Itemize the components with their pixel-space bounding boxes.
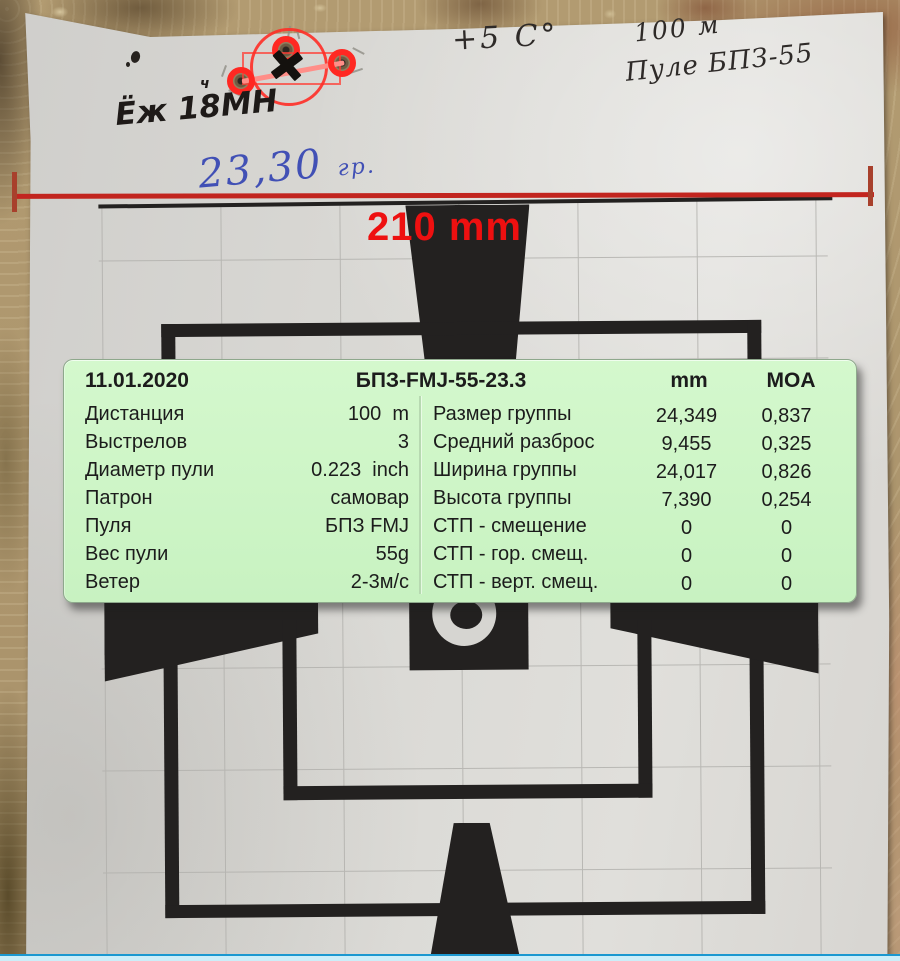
stat-label: СТП - верт. смещ.	[433, 568, 639, 596]
info-label: Выстрелов	[85, 428, 187, 456]
target-inner-bottom-bar	[283, 784, 652, 801]
info-value: 55g	[376, 540, 409, 568]
info-value: 100 m	[348, 400, 409, 428]
info-row-wind: Ветер2-3м/с	[85, 568, 409, 596]
target-photo-view: +5 C° 100 м Пуле БПЗ-55 ч Ёж 18МН 23,30 …	[0, 0, 900, 961]
stat-label: Ширина группы	[433, 456, 639, 484]
stat-moa: 0,826	[734, 456, 839, 484]
stat-row-poi-horizontal: СТП - гор. смещ.00	[433, 540, 839, 568]
info-row-bullet: ПуляБПЗ FMJ	[85, 512, 409, 540]
paper-speck	[126, 62, 130, 67]
column-header-mm: mm	[639, 369, 739, 393]
target-inner-right-bar	[637, 597, 652, 798]
stat-label: Средний разброс	[433, 428, 639, 456]
width-measure-tick-left	[12, 172, 17, 212]
stat-moa: 0	[734, 540, 839, 568]
stat-label: СТП - гор. смещ.	[433, 540, 639, 568]
width-measure-label: 210 mm	[367, 205, 522, 250]
stats-panel[interactable]: 11.01.2020 БПЗ-FMJ-55-23.3 mm MOA Дистан…	[63, 359, 857, 603]
load-title: БПЗ-FMJ-55-23.3	[341, 369, 541, 393]
info-value: 2-3м/с	[351, 568, 409, 596]
group-stats-list: Размер группы24,3490,837 Средний разброс…	[433, 400, 839, 596]
info-row-shots: Выстрелов3	[85, 428, 409, 456]
info-label: Пуля	[85, 512, 131, 540]
stat-row-group-width: Ширина группы24,0170,826	[433, 456, 839, 484]
stat-label: Размер группы	[433, 400, 639, 428]
info-label: Вес пули	[85, 540, 168, 568]
stat-row-poi-offset: СТП - смещение00	[433, 512, 839, 540]
stat-label: Высота группы	[433, 484, 639, 512]
stat-mm: 0	[639, 512, 734, 540]
stat-mm: 0	[639, 568, 734, 596]
stat-moa: 0,837	[734, 400, 839, 428]
stat-row-group-height: Высота группы7,3900,254	[433, 484, 839, 512]
powder-weight-unit: гр.	[337, 153, 377, 181]
stat-row-group-size: Размер группы24,3490,837	[433, 400, 839, 428]
session-date: 11.01.2020	[85, 369, 189, 393]
info-value: 0.223 inch	[311, 456, 409, 484]
stat-mm: 0	[639, 540, 734, 568]
stat-mm: 24,017	[639, 456, 734, 484]
session-info-list: Дистанция100 m Выстрелов3 Диаметр пули0.…	[85, 400, 409, 596]
stat-row-mean-radius: Средний разброс9,4550,325	[433, 428, 839, 456]
window-edge-bar	[0, 954, 900, 961]
info-row-bullet-weight: Вес пули55g	[85, 540, 409, 568]
handwritten-temperature: +5 C°	[451, 17, 559, 58]
info-value: 3	[398, 428, 409, 456]
stat-moa: 0	[734, 512, 839, 540]
info-row-cartridge: Патронсамовар	[85, 484, 409, 512]
info-label: Патрон	[85, 484, 153, 512]
info-row-bullet-diameter: Диаметр пули0.223 inch	[85, 456, 409, 484]
panel-divider	[419, 396, 421, 594]
column-header-moa: MOA	[736, 369, 846, 393]
stat-moa: 0,254	[734, 484, 839, 512]
stat-mm: 7,390	[639, 484, 734, 512]
stat-mm: 24,349	[639, 400, 734, 428]
stat-row-poi-vertical: СТП - верт. смещ.00	[433, 568, 839, 596]
stat-moa: 0	[734, 568, 839, 596]
info-value: самовар	[330, 484, 409, 512]
stat-label: СТП - смещение	[433, 512, 639, 540]
target-inner-left-bar	[282, 599, 297, 800]
stat-moa: 0,325	[734, 428, 839, 456]
group-center-marker	[271, 50, 304, 81]
target-center-dot	[450, 601, 482, 629]
info-label: Дистанция	[85, 400, 184, 428]
info-label: Ветер	[85, 568, 140, 596]
stat-mm: 9,455	[639, 428, 734, 456]
shot-marker-right[interactable]	[328, 49, 356, 77]
info-value: БПЗ FMJ	[325, 512, 409, 540]
width-measure-tick-right	[868, 166, 873, 206]
info-row-distance: Дистанция100 m	[85, 400, 409, 428]
info-label: Диаметр пули	[85, 456, 214, 484]
